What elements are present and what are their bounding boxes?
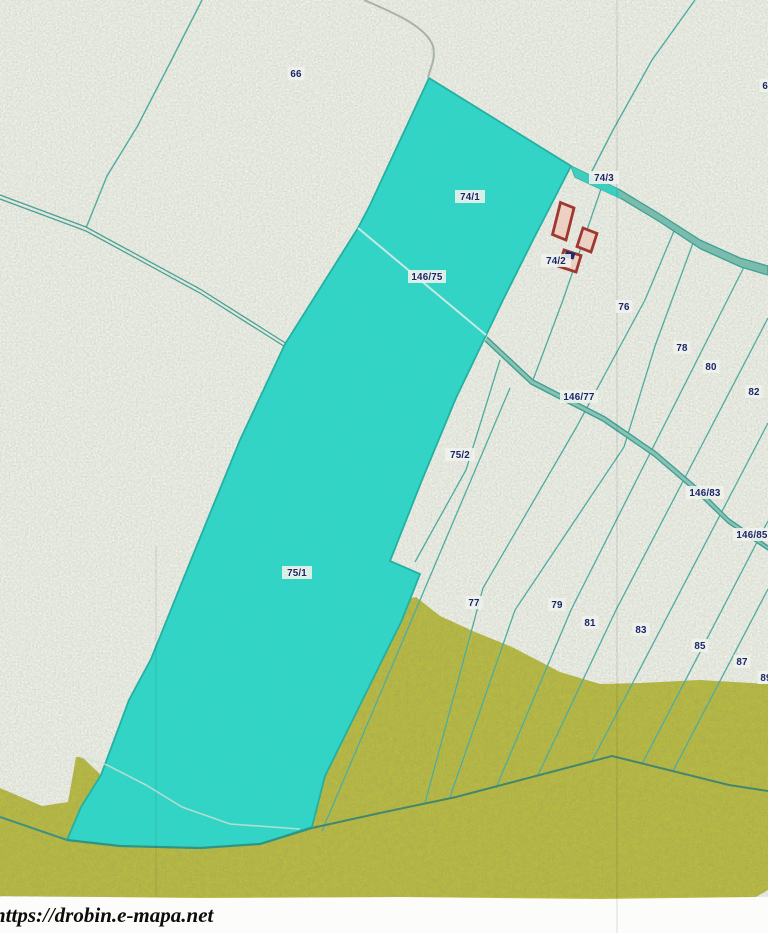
svg-text:81: 81 (584, 618, 596, 629)
svg-text:82: 82 (748, 387, 760, 398)
svg-text:75/1: 75/1 (287, 568, 307, 579)
svg-text:79: 79 (551, 600, 563, 611)
svg-text:146/85: 146/85 (736, 530, 768, 541)
svg-text:77: 77 (468, 598, 480, 609)
svg-text:74/3: 74/3 (594, 173, 614, 184)
svg-text:74/1: 74/1 (460, 192, 480, 203)
svg-text:78: 78 (676, 343, 688, 354)
svg-text:75/2: 75/2 (450, 450, 470, 461)
svg-text:146/75: 146/75 (411, 272, 443, 283)
svg-text:146/83: 146/83 (689, 488, 721, 499)
svg-text:74/2: 74/2 (546, 256, 566, 267)
svg-text:76: 76 (618, 302, 630, 313)
svg-text:87: 87 (736, 657, 748, 668)
svg-text:68: 68 (762, 81, 768, 92)
svg-text:146/77: 146/77 (563, 392, 595, 403)
svg-text:https://drobin.e-mapa.net: https://drobin.e-mapa.net (0, 903, 215, 927)
svg-text:85: 85 (694, 641, 706, 652)
svg-text:89: 89 (760, 673, 768, 684)
svg-text:80: 80 (705, 362, 717, 373)
svg-text:83: 83 (635, 625, 647, 636)
svg-text:66: 66 (290, 69, 302, 80)
